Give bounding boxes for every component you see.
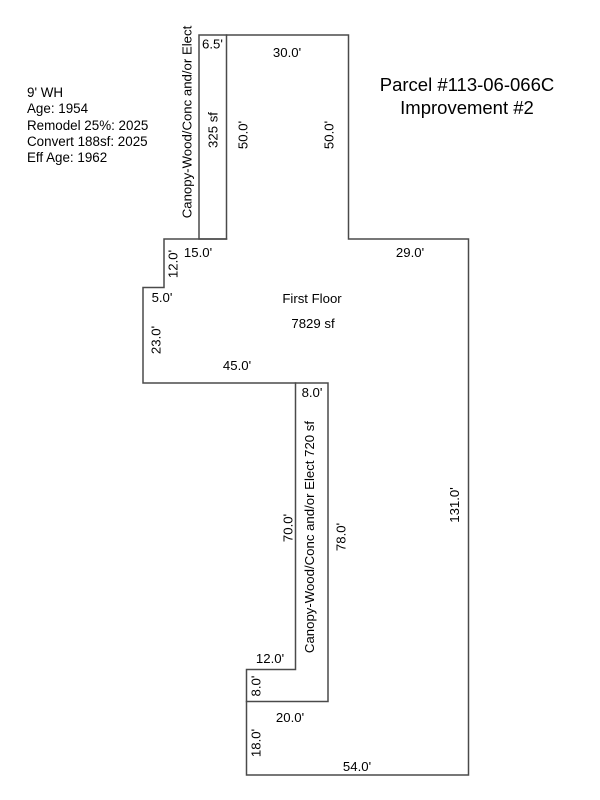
first-floor-labels: 30.0' 50.0' 50.0' 15.0' 12.0' 29.0' 5.0'… xyxy=(149,45,463,774)
dim-right-offset: 29.0' xyxy=(396,245,424,260)
first-floor-name-label: First Floor xyxy=(282,291,342,306)
info-line-wh: 9' WH xyxy=(27,85,63,100)
dim-left-height: 23.0' xyxy=(149,326,164,354)
property-info-block: 9' WH Age: 1954 Remodel 25%: 2025 Conver… xyxy=(27,85,148,165)
dim-top-width: 30.0' xyxy=(273,45,301,60)
dim-lower-canopy-top-width: 8.0' xyxy=(302,385,323,400)
top-canopy-area-label: 325 sf xyxy=(206,112,221,148)
dim-bottom-width: 45.0' xyxy=(223,358,251,373)
parcel-number-label: Parcel #113-06-066C xyxy=(380,74,555,95)
parcel-sketch: 9' WH Age: 1954 Remodel 25%: 2025 Conver… xyxy=(0,0,600,800)
improvement-number-label: Improvement #2 xyxy=(400,97,534,118)
info-line-remodel: Remodel 25%: 2025 xyxy=(27,118,148,133)
info-line-convert: Convert 188sf: 2025 xyxy=(27,134,148,149)
dim-lower-canopy-foot-width: 12.0' xyxy=(256,651,284,666)
dim-right-height: 131.0' xyxy=(447,487,462,523)
info-line-age: Age: 1954 xyxy=(27,101,89,116)
dim-lower-left-height: 18.0' xyxy=(249,729,264,757)
dim-top-canopy-width: 6.5' xyxy=(202,37,223,52)
dim-lower-canopy-foot-height: 8.0' xyxy=(249,676,264,697)
first-floor-area-label: 7829 sf xyxy=(291,316,335,331)
dim-lower-canopy-right-height: 78.0' xyxy=(334,523,349,551)
top-canopy-type-label: Canopy-Wood/Conc and/or Elect xyxy=(180,25,195,218)
dim-upper-step-width: 15.0' xyxy=(184,245,212,260)
top-canopy-labels: 6.5' Canopy-Wood/Conc and/or Elect 325 s… xyxy=(180,25,223,218)
dim-lower-canopy-left-height: 70.0' xyxy=(281,514,296,542)
sketch-canvas: 9' WH Age: 1954 Remodel 25%: 2025 Conver… xyxy=(0,0,600,800)
dim-top-right-height: 50.0' xyxy=(322,121,337,149)
dim-lower-canopy-bottom-width: 20.0' xyxy=(276,710,304,725)
dim-bottom-edge: 54.0' xyxy=(343,759,371,774)
info-line-effage: Eff Age: 1962 xyxy=(27,150,107,165)
lower-canopy-labels: 8.0' Canopy-Wood/Conc and/or Elect 720 s… xyxy=(249,385,349,725)
sketch-title: Parcel #113-06-066C Improvement #2 xyxy=(380,74,555,118)
dim-upper-step-height: 12.0' xyxy=(166,250,181,278)
lower-canopy-type-label: Canopy-Wood/Conc and/or Elect 720 sf xyxy=(302,421,317,653)
dim-top-left-height: 50.0' xyxy=(236,121,251,149)
dim-notch-width: 5.0' xyxy=(152,290,173,305)
